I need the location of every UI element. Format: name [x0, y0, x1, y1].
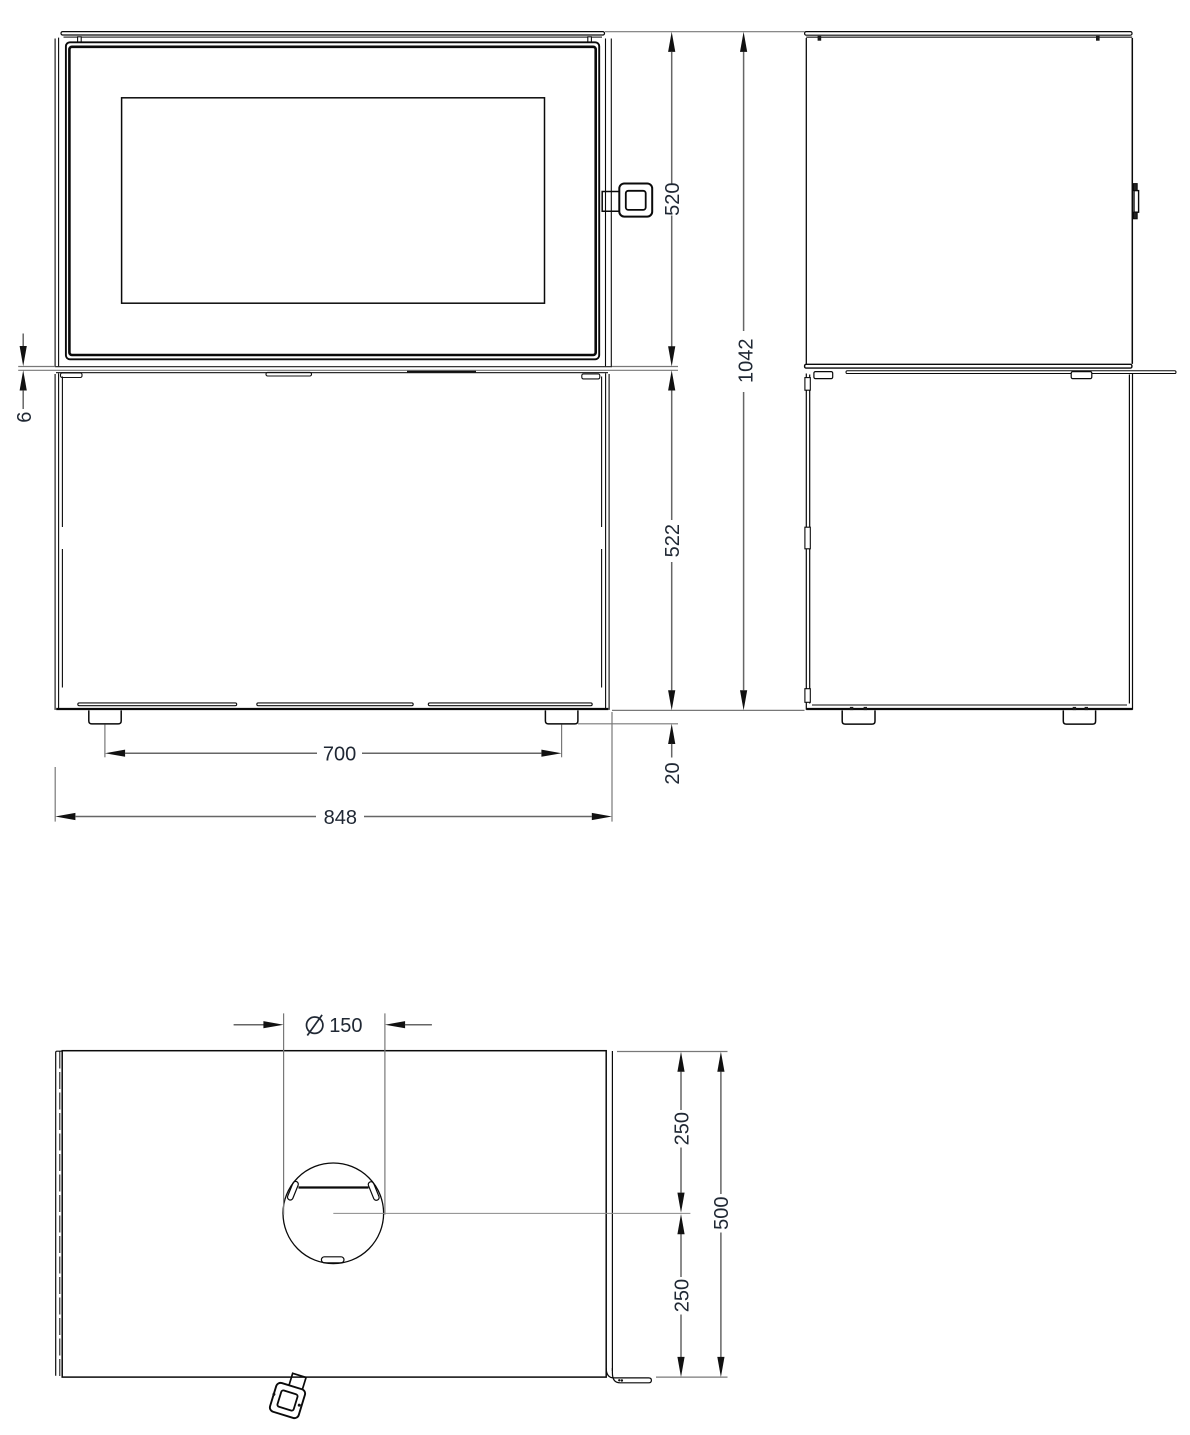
svg-text:250: 250 [671, 1112, 693, 1145]
svg-text:250: 250 [671, 1279, 693, 1312]
svg-text:20: 20 [662, 762, 684, 784]
svg-text:848: 848 [324, 807, 357, 829]
svg-text:700: 700 [323, 744, 356, 766]
svg-text:6: 6 [14, 412, 36, 423]
svg-text:520: 520 [662, 183, 684, 216]
svg-text:500: 500 [711, 1197, 733, 1230]
svg-text:1042: 1042 [736, 339, 758, 384]
svg-text:522: 522 [662, 524, 684, 557]
svg-text:150: 150 [329, 1015, 362, 1037]
